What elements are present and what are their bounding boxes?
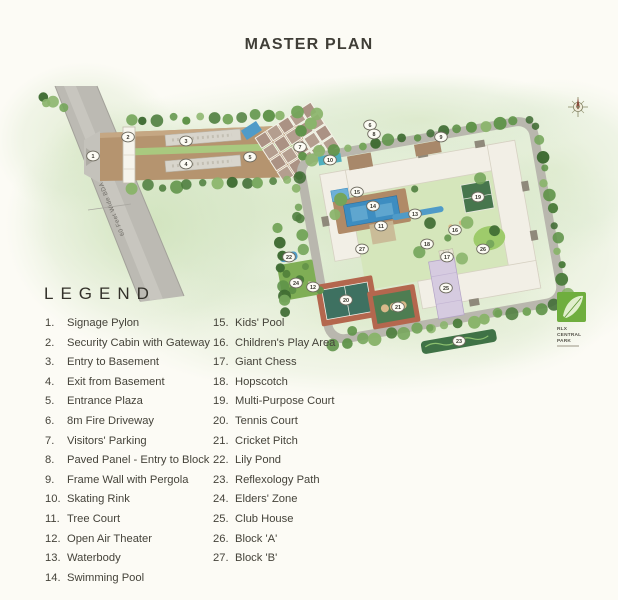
plan-marker-15: 15 — [351, 187, 364, 197]
tree — [291, 106, 304, 119]
plan-marker-6: 6 — [364, 120, 377, 130]
legend-item-label: Skating Rink — [67, 494, 130, 505]
tree — [440, 321, 448, 329]
svg-text:10: 10 — [327, 158, 333, 164]
svg-text:5: 5 — [249, 155, 252, 161]
tree — [212, 177, 224, 189]
tree — [252, 177, 263, 188]
svg-text:11: 11 — [378, 224, 384, 230]
tree — [553, 248, 560, 255]
legend-item: 4.Exit from Basement — [45, 377, 230, 388]
tree — [466, 122, 477, 133]
plan-marker-10: 10 — [324, 155, 337, 165]
legend-item-label: Security Cabin with Gateway — [67, 338, 210, 349]
tree — [275, 111, 285, 121]
plan-marker-2: 2 — [122, 132, 135, 142]
legend-title: LEGEND — [44, 284, 584, 304]
tree — [298, 244, 309, 255]
page-title: MASTER PLAN — [0, 36, 618, 54]
plan-marker-27: 27 — [356, 244, 369, 254]
svg-text:1: 1 — [92, 154, 95, 160]
legend-item-label: Exit from Basement — [67, 377, 165, 388]
legend-item: 27.Block 'B' — [213, 553, 413, 564]
legend-item-number: 13. — [45, 553, 67, 564]
plan-marker-13: 13 — [409, 209, 422, 219]
tree — [276, 263, 285, 272]
legend-item: 10.Skating Rink — [45, 494, 230, 505]
tree — [227, 177, 238, 188]
tree — [551, 222, 558, 229]
plan-marker-23: 23 — [453, 336, 466, 346]
tree — [328, 144, 340, 156]
tree — [541, 164, 548, 171]
tree — [424, 217, 436, 229]
tree — [453, 319, 463, 329]
svg-text:17: 17 — [444, 255, 450, 261]
tree — [296, 229, 308, 241]
tree — [344, 145, 351, 152]
legend-item-number: 14. — [45, 573, 67, 584]
tree — [295, 214, 304, 223]
legend-item-number: 20. — [213, 416, 235, 427]
legend-item-label: Paved Panel - Entry to Block — [67, 455, 209, 466]
legend-item-label: Signage Pylon — [67, 318, 139, 329]
legend-item-label: Kids' Pool — [235, 318, 284, 329]
legend-item: 18.Hopscotch — [213, 377, 413, 388]
svg-text:15: 15 — [354, 190, 360, 196]
svg-text:27: 27 — [359, 247, 365, 253]
legend-item-label: Block 'B' — [235, 553, 277, 564]
plan-marker-7: 7 — [294, 142, 307, 152]
legend-item: 19.Multi-Purpose Court — [213, 396, 413, 407]
legend-item-number: 1. — [45, 318, 67, 329]
tree — [411, 323, 422, 334]
legend-item-label: Reflexology Path — [235, 475, 320, 486]
svg-text:13: 13 — [412, 212, 418, 218]
logo-line-3: PARK — [557, 338, 571, 344]
tree — [182, 117, 190, 125]
legend-item: 9.Frame Wall with Pergola — [45, 475, 230, 486]
legend-item-number: 11. — [45, 514, 67, 525]
tree — [126, 183, 138, 195]
legend-item-number: 2. — [45, 338, 67, 349]
svg-text:9: 9 — [440, 135, 443, 141]
legend-item-label: Frame Wall with Pergola — [67, 475, 188, 486]
legend-item: 15.Kids' Pool — [213, 318, 413, 329]
legend-item-number: 19. — [213, 396, 235, 407]
tree — [294, 171, 306, 183]
legend-item-label: Visitors' Parking — [67, 436, 147, 447]
svg-text:8: 8 — [373, 132, 376, 138]
legend-item: 6.8m Fire Driveway — [45, 416, 230, 427]
tree — [126, 114, 137, 125]
legend-item-number: 26. — [213, 534, 235, 545]
svg-text:26: 26 — [480, 247, 486, 253]
legend-item-number: 23. — [213, 475, 235, 486]
legend-item-number: 15. — [213, 318, 235, 329]
plan-marker-22: 22 — [283, 252, 296, 262]
legend: LEGEND 1.Signage Pylon2.Security Cabin w… — [44, 284, 584, 318]
tree — [532, 123, 539, 130]
tree — [250, 109, 261, 120]
tree — [199, 179, 206, 186]
svg-text:19: 19 — [475, 195, 481, 201]
legend-item-label: Open Air Theater — [67, 534, 152, 545]
tree — [452, 124, 461, 133]
tree — [481, 121, 492, 132]
plan-marker-5: 5 — [244, 152, 257, 162]
svg-text:6: 6 — [369, 123, 372, 129]
plan-marker-11: 11 — [375, 221, 388, 231]
svg-text:4: 4 — [185, 162, 188, 168]
tree — [548, 203, 558, 213]
legend-item-number: 4. — [45, 377, 67, 388]
tree — [292, 184, 301, 193]
legend-item: 23.Reflexology Path — [213, 475, 413, 486]
tree — [181, 179, 192, 190]
tree — [329, 209, 340, 220]
tree — [47, 96, 59, 108]
tree — [359, 143, 367, 151]
plan-marker-16: 16 — [449, 225, 462, 235]
tree — [382, 134, 394, 146]
tree — [539, 179, 547, 187]
plan-marker-3: 3 — [180, 136, 193, 146]
legend-item-label: Club House — [235, 514, 293, 525]
tree — [223, 114, 234, 125]
tree — [537, 151, 550, 164]
legend-item: 13.Waterbody — [45, 553, 230, 564]
legend-item: 20.Tennis Court — [213, 416, 413, 427]
svg-text:22: 22 — [286, 255, 292, 261]
logo-line-1: RLX — [557, 326, 568, 332]
legend-item-label: Children's Play Area — [235, 338, 335, 349]
legend-item: 17.Giant Chess — [213, 357, 413, 368]
legend-item: 5.Entrance Plaza — [45, 396, 230, 407]
legend-item-number: 25. — [213, 514, 235, 525]
legend-item-number: 18. — [213, 377, 235, 388]
tree — [456, 253, 468, 265]
tree — [269, 177, 277, 185]
tree — [334, 193, 347, 206]
legend-item: 21.Cricket Pitch — [213, 436, 413, 447]
svg-text:2: 2 — [127, 135, 130, 141]
tree — [170, 181, 183, 194]
tree — [283, 176, 291, 184]
plan-marker-17: 17 — [441, 252, 454, 262]
legend-item-number: 21. — [213, 436, 235, 447]
legend-item: 26.Block 'A' — [213, 534, 413, 545]
plan-marker-14: 14 — [367, 201, 380, 211]
legend-item: 3.Entry to Basement — [45, 357, 230, 368]
legend-item-label: Entry to Basement — [67, 357, 159, 368]
svg-text:18: 18 — [424, 242, 430, 248]
legend-item-label: Cricket Pitch — [235, 436, 298, 447]
tree — [159, 184, 166, 191]
tree — [272, 223, 282, 233]
legend-item-number: 7. — [45, 436, 67, 447]
tree — [370, 138, 381, 149]
plan-marker-26: 26 — [477, 244, 490, 254]
svg-text:3: 3 — [185, 139, 188, 145]
tree — [196, 113, 204, 121]
tree — [138, 117, 146, 125]
tree — [444, 234, 451, 241]
legend-item: 22.Lily Pond — [213, 455, 413, 466]
legend-item-number: 16. — [213, 338, 235, 349]
legend-item-label: Tree Court — [67, 514, 120, 525]
legend-item: 8.Paved Panel - Entry to Block — [45, 455, 230, 466]
tree — [242, 178, 253, 189]
legend-item: 16.Children's Play Area — [213, 338, 413, 349]
tree — [59, 103, 68, 112]
tree — [305, 118, 317, 130]
tree — [543, 189, 556, 202]
svg-text:7: 7 — [299, 145, 302, 151]
plan-marker-19: 19 — [472, 192, 485, 202]
tree — [559, 261, 566, 268]
legend-item-number: 6. — [45, 416, 67, 427]
legend-item-label: Swimming Pool — [67, 573, 144, 584]
legend-item-label: Multi-Purpose Court — [235, 396, 334, 407]
legend-item-label: Block 'A' — [235, 534, 277, 545]
legend-item-number: 3. — [45, 357, 67, 368]
tree — [397, 134, 406, 143]
tree — [461, 216, 474, 229]
tree — [295, 204, 302, 211]
legend-item: 7.Visitors' Parking — [45, 436, 230, 447]
legend-item: 1.Signage Pylon — [45, 318, 230, 329]
tree — [426, 324, 433, 331]
legend-item: 12.Open Air Theater — [45, 534, 230, 545]
plan-marker-4: 4 — [180, 159, 193, 169]
legend-item-label: Giant Chess — [235, 357, 297, 368]
plan-marker-9: 9 — [435, 132, 448, 142]
tree — [426, 129, 434, 137]
legend-item-number: 27. — [213, 553, 235, 564]
tree — [508, 116, 517, 125]
legend-item-number: 22. — [213, 455, 235, 466]
legend-item-number: 9. — [45, 475, 67, 486]
legend-item: 25.Club House — [213, 514, 413, 525]
legend-item: 11.Tree Court — [45, 514, 230, 525]
legend-column-1: 1.Signage Pylon2.Security Cabin with Gat… — [45, 318, 230, 592]
tree — [274, 237, 286, 249]
tree — [411, 185, 418, 192]
tree — [170, 113, 178, 121]
legend-item: 14.Swimming Pool — [45, 573, 230, 584]
tree — [553, 232, 564, 243]
legend-item-label: Hopscotch — [235, 377, 288, 388]
tree — [142, 179, 154, 191]
tree — [151, 114, 164, 127]
legend-item-label: Tennis Court — [235, 416, 298, 427]
plan-marker-8: 8 — [368, 129, 381, 139]
legend-item-number: 10. — [45, 494, 67, 505]
tree — [263, 110, 275, 122]
legend-item-label: Elders' Zone — [235, 494, 297, 505]
plan-marker-1: 1 — [87, 151, 100, 161]
legend-item-label: Entrance Plaza — [67, 396, 143, 407]
legend-item-label: Waterbody — [67, 553, 121, 564]
tree — [236, 112, 247, 123]
legend-item-number: 8. — [45, 455, 67, 466]
legend-item-number: 24. — [213, 494, 235, 505]
tree — [494, 117, 507, 130]
svg-text:23: 23 — [456, 339, 462, 345]
legend-item-number: 12. — [45, 534, 67, 545]
tree — [534, 135, 544, 145]
svg-text:14: 14 — [370, 204, 376, 210]
legend-item: 24.Elders' Zone — [213, 494, 413, 505]
tree — [209, 112, 221, 124]
tree — [295, 125, 307, 137]
tree — [474, 172, 486, 184]
logo-line-2: CENTRAL — [557, 332, 581, 338]
tree — [305, 154, 318, 167]
legend-item: 2.Security Cabin with Gateway — [45, 338, 230, 349]
tree — [489, 225, 500, 236]
legend-item-label: Lily Pond — [235, 455, 281, 466]
legend-item-number: 17. — [213, 357, 235, 368]
tree — [414, 134, 421, 141]
svg-text:16: 16 — [452, 228, 458, 234]
plan-marker-18: 18 — [421, 239, 434, 249]
tree — [526, 116, 534, 124]
legend-column-2: 15.Kids' Pool16.Children's Play Area17.G… — [213, 318, 413, 573]
legend-item-number: 5. — [45, 396, 67, 407]
legend-item-label: 8m Fire Driveway — [67, 416, 154, 427]
